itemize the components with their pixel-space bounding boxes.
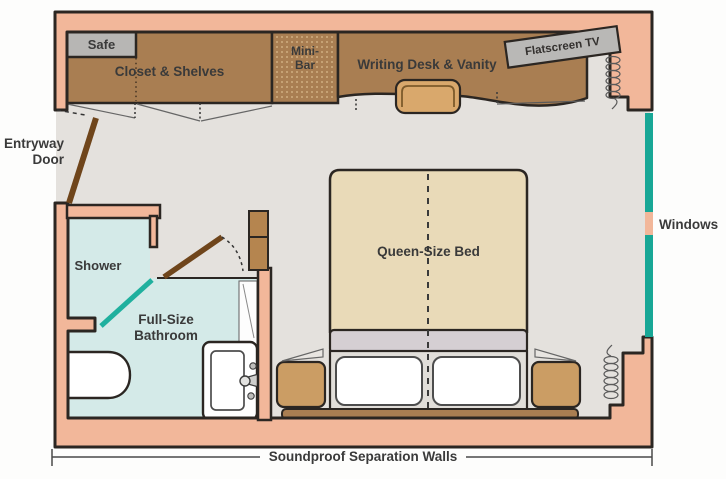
window-lower <box>645 235 653 337</box>
bathroom-wall-right <box>258 268 271 420</box>
nightstand-right <box>532 362 580 407</box>
shower-label: Shower <box>66 258 130 273</box>
entryway-door-label: EntrywayDoor <box>0 136 64 168</box>
window-mullion <box>645 212 653 235</box>
toilet <box>68 352 130 398</box>
pillow-right <box>433 357 520 405</box>
window-upper <box>645 113 653 212</box>
desk-chair <box>396 80 460 113</box>
bathroom-wall-top <box>67 205 160 218</box>
safe-label: Safe <box>67 32 136 57</box>
bathroom-wall-stub <box>150 216 157 247</box>
nightstand-left <box>277 362 325 407</box>
faucet-knob-cold <box>248 393 254 399</box>
faucet-base <box>240 376 250 386</box>
closet-label: Closet & Shelves <box>67 63 272 79</box>
desk-label: Writing Desk & Vanity <box>337 56 517 72</box>
pillow-left <box>336 357 422 405</box>
windows-label: Windows <box>659 217 718 232</box>
bathroom-label: Full-SizeBathroom <box>108 312 224 344</box>
sink-basin <box>211 351 244 410</box>
bathroom-cabinet-upper <box>249 211 268 237</box>
floorplan-canvas: Safe Closet & Shelves Mini-Bar Writing D… <box>0 0 726 479</box>
bathroom-cabinet-lower <box>249 237 268 270</box>
faucet-knob-hot <box>250 363 256 369</box>
minibar-label: Mini-Bar <box>272 44 338 72</box>
bed-label: Queen-Size Bed <box>330 243 527 259</box>
